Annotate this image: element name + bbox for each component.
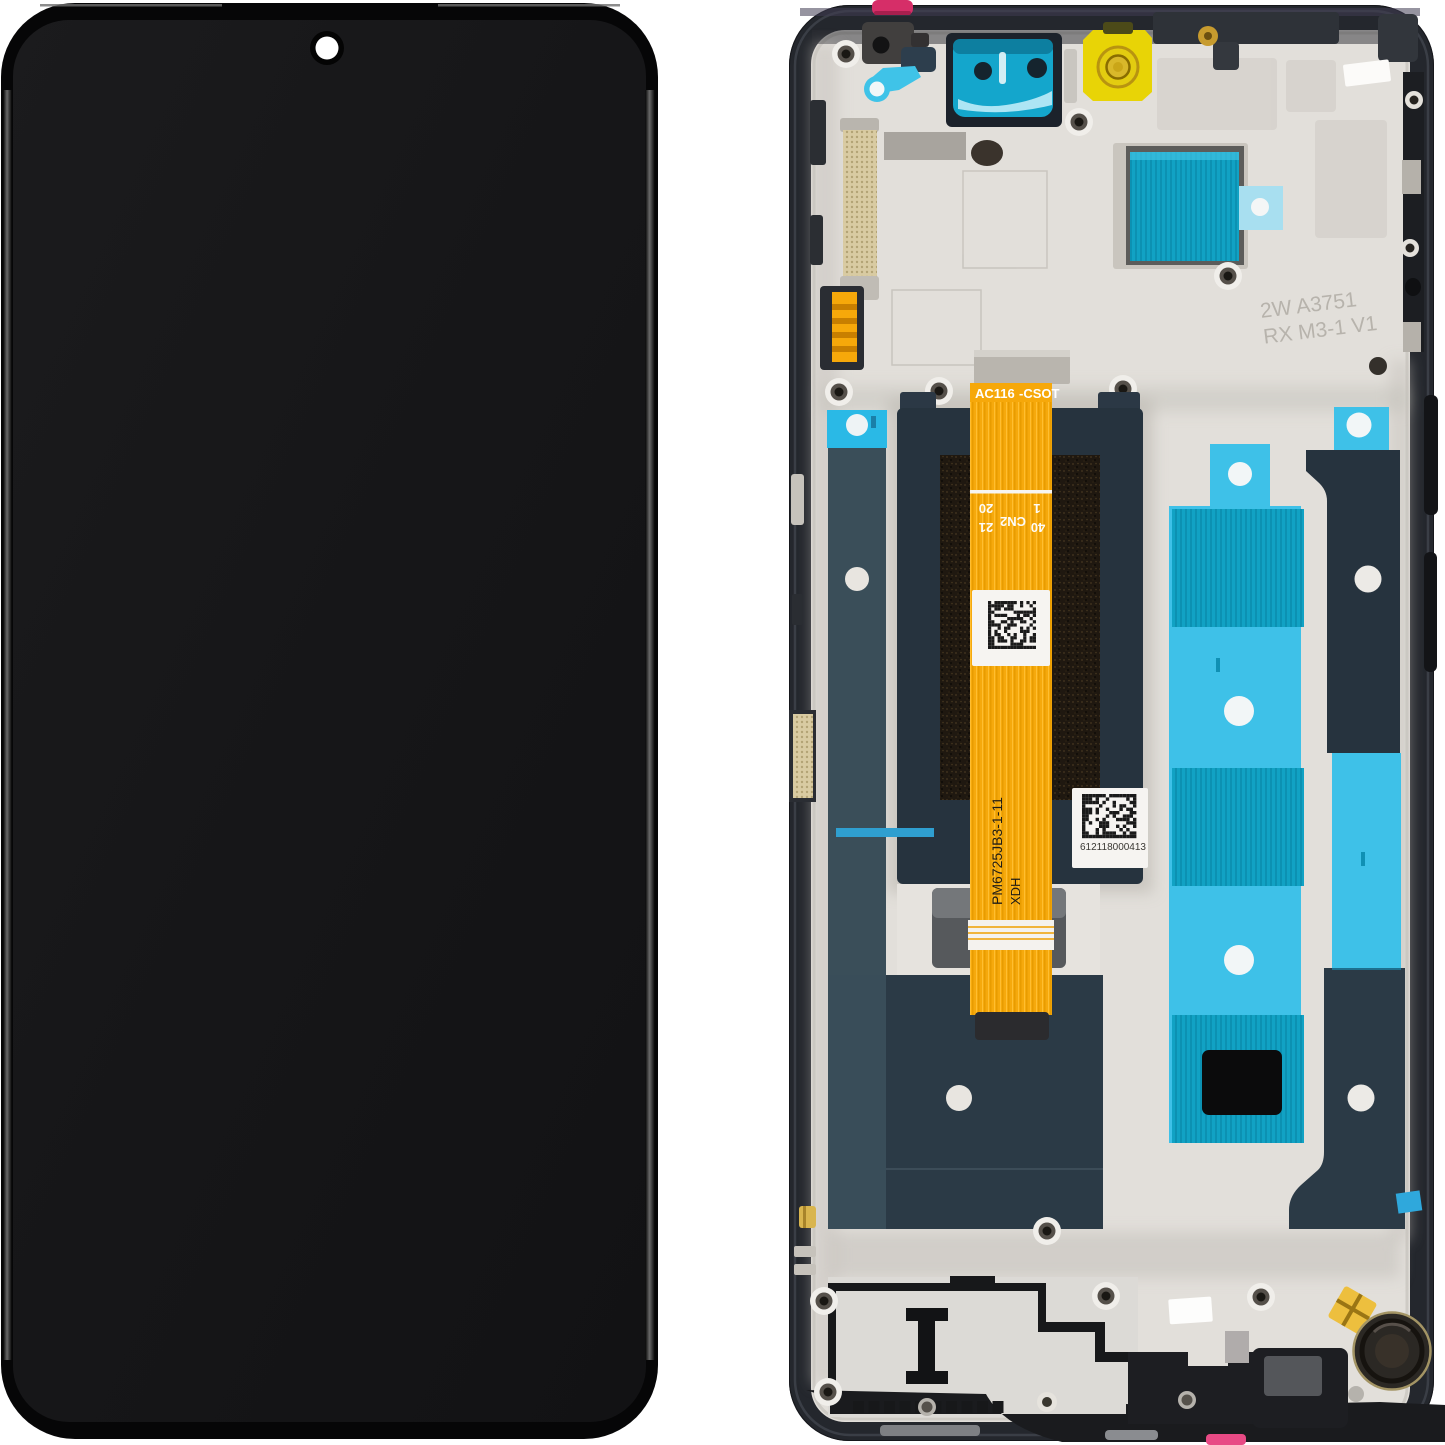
svg-text:PM6725JB3-1-11: PM6725JB3-1-11 [989,797,1005,905]
svg-text:CN2: CN2 [1000,514,1026,529]
svg-text:1: 1 [1033,501,1040,516]
svg-text:20: 20 [979,501,993,516]
svg-text:-CSOT: -CSOT [1019,386,1060,401]
svg-text:612118000413: 612118000413 [1080,842,1146,853]
svg-text:AC116: AC116 [975,386,1015,401]
svg-text:40: 40 [1031,520,1045,535]
svg-text:XDH: XDH [1008,878,1023,905]
svg-text:21: 21 [979,520,993,535]
